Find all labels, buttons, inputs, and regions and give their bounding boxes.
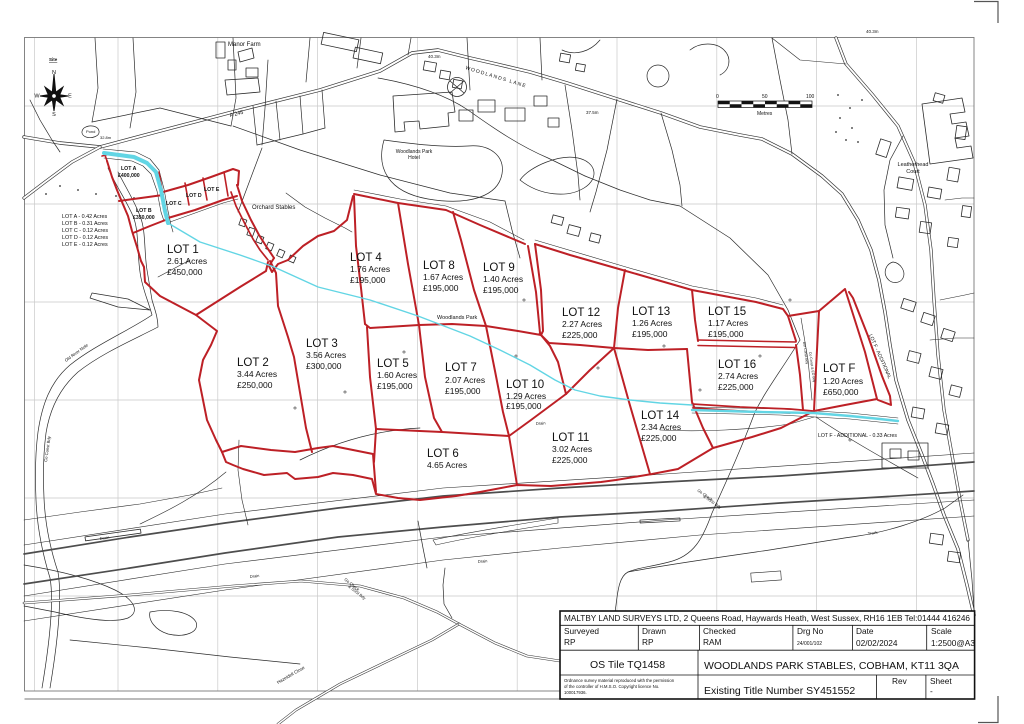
svg-text:LOT 7: LOT 7 — [445, 362, 477, 374]
svg-text:3.44 Acres: 3.44 Acres — [237, 369, 277, 379]
svg-text:of the controller of H.M.S.O.: of the controller of H.M.S.O. Copyright … — [564, 684, 659, 689]
svg-text:Leatherhead: Leatherhead — [898, 162, 929, 168]
svg-text:40.3m: 40.3m — [428, 54, 441, 59]
svg-text:LOT C: LOT C — [166, 201, 182, 207]
svg-text:E: E — [68, 94, 72, 100]
svg-text:1.29 Acres: 1.29 Acres — [506, 391, 546, 401]
svg-text:Scale: Scale — [931, 626, 952, 636]
svg-text:-: - — [930, 686, 933, 696]
svg-text:LOT E - 0.12 Acres: LOT E - 0.12 Acres — [62, 242, 108, 248]
svg-text:LOT E: LOT E — [204, 187, 220, 193]
svg-text:£400,000: £400,000 — [118, 173, 140, 179]
svg-text:LOT 2: LOT 2 — [237, 357, 269, 369]
svg-text:50: 50 — [762, 94, 768, 100]
svg-text:OS Tile TQ1458: OS Tile TQ1458 — [590, 659, 665, 671]
svg-text:LOT 14: LOT 14 — [641, 410, 680, 422]
svg-text:S: S — [52, 112, 56, 118]
svg-text:£225,000: £225,000 — [562, 330, 598, 340]
svg-text:2.61 Acres: 2.61 Acres — [167, 256, 207, 266]
svg-text:100: 100 — [806, 94, 815, 100]
svg-text:1.40 Acres: 1.40 Acres — [483, 274, 523, 284]
svg-text:£195,000: £195,000 — [483, 285, 519, 295]
svg-text:£300,000: £300,000 — [306, 361, 342, 371]
svg-text:Ordnance survey material repro: Ordnance survey material reproduced with… — [564, 678, 675, 683]
svg-text:LOT 5: LOT 5 — [377, 358, 409, 370]
svg-text:£195,000: £195,000 — [506, 401, 542, 411]
svg-text:LOT 6: LOT 6 — [427, 448, 459, 460]
svg-text:LOT 3: LOT 3 — [306, 338, 338, 350]
svg-text:LOT A: LOT A — [121, 166, 137, 172]
svg-text:24/001/102: 24/001/102 — [797, 641, 822, 647]
svg-text:RP: RP — [564, 637, 576, 647]
svg-text:LOT 9: LOT 9 — [483, 262, 515, 274]
svg-text:LOT B - 0.31 Acres: LOT B - 0.31 Acres — [62, 221, 108, 227]
svg-text:4.65 Acres: 4.65 Acres — [427, 460, 467, 470]
svg-text:LOT 15: LOT 15 — [708, 306, 746, 318]
svg-text:£225,000: £225,000 — [552, 455, 588, 465]
svg-text:WOODLANDS PARK STABLES, COBHAM: WOODLANDS PARK STABLES, COBHAM, KT11 3QA — [704, 660, 959, 672]
svg-text:LOT 11: LOT 11 — [552, 432, 589, 444]
svg-text:Checked: Checked — [703, 626, 736, 636]
svg-text:Orchard Stables: Orchard Stables — [252, 205, 295, 211]
svg-text:£195,000: £195,000 — [445, 386, 481, 396]
svg-text:2.27 Acres: 2.27 Acres — [562, 319, 602, 329]
svg-text:Sheet: Sheet — [930, 676, 952, 686]
svg-text:LOT F: LOT F — [823, 363, 855, 375]
svg-text:1.20 Acres: 1.20 Acres — [823, 376, 863, 386]
svg-text:LOT 13: LOT 13 — [632, 306, 670, 318]
svg-text:LOT D: LOT D — [186, 193, 202, 199]
svg-text:LOT F - ADDITIONAL - 0.33 Acre: LOT F - ADDITIONAL - 0.33 Acres — [818, 433, 897, 439]
svg-text:LOT D - 0.12 Acres: LOT D - 0.12 Acres — [62, 235, 108, 241]
svg-text:1.17 Acres: 1.17 Acres — [708, 318, 748, 328]
svg-text:Manor Farm: Manor Farm — [228, 42, 261, 48]
svg-text:1.60 Acres: 1.60 Acres — [377, 370, 417, 380]
svg-text:LOT 4: LOT 4 — [350, 252, 382, 264]
svg-text:3.02 Acres: 3.02 Acres — [552, 444, 592, 454]
svg-text:LOT 16: LOT 16 — [718, 359, 756, 371]
svg-text:Pond: Pond — [86, 129, 95, 134]
svg-text:£225,000: £225,000 — [641, 433, 677, 443]
svg-text:3.56 Acres: 3.56 Acres — [306, 350, 346, 360]
svg-text:£250,000: £250,000 — [237, 380, 273, 390]
svg-text:£350,000: £350,000 — [133, 215, 155, 221]
svg-text:Metres: Metres — [757, 111, 773, 117]
svg-text:MALTBY LAND SURVEYS LTD, 2 Que: MALTBY LAND SURVEYS LTD, 2 Queens Road, … — [564, 613, 970, 623]
svg-text:Woodlands Park: Woodlands Park — [437, 315, 478, 321]
svg-text:1.67 Acres: 1.67 Acres — [423, 272, 463, 282]
svg-text:£195,000: £195,000 — [708, 329, 744, 339]
svg-text:Surveyed: Surveyed — [564, 626, 599, 636]
svg-text:£650,000: £650,000 — [823, 387, 859, 397]
svg-text:02/02/2024: 02/02/2024 — [856, 638, 898, 648]
svg-text:Rev: Rev — [892, 676, 908, 686]
svg-text:£195,000: £195,000 — [423, 283, 459, 293]
svg-text:Hotel: Hotel — [408, 155, 420, 161]
svg-text:W: W — [34, 94, 40, 100]
svg-text:Date: Date — [856, 626, 874, 636]
svg-text:Court: Court — [906, 169, 920, 175]
svg-text:1:2500@A3: 1:2500@A3 — [931, 638, 975, 648]
svg-text:2.74 Acres: 2.74 Acres — [718, 371, 758, 381]
svg-text:£195,000: £195,000 — [632, 329, 668, 339]
svg-text:£450,000: £450,000 — [167, 267, 203, 277]
svg-text:£195,000: £195,000 — [377, 381, 413, 391]
svg-text:Drain: Drain — [536, 420, 546, 426]
svg-text:37.5m: 37.5m — [586, 110, 599, 115]
svg-text:LOT 12: LOT 12 — [562, 307, 600, 319]
svg-text:RP: RP — [642, 637, 654, 647]
svg-text:LOT 8: LOT 8 — [423, 260, 455, 272]
svg-text:2.34 Acres: 2.34 Acres — [641, 422, 681, 432]
svg-text:2.07 Acres: 2.07 Acres — [445, 375, 485, 385]
svg-text:N: N — [52, 70, 56, 76]
svg-text:£195,000: £195,000 — [350, 275, 386, 285]
svg-text:0: 0 — [716, 94, 719, 100]
svg-text:Existing Title Number SY451552: Existing Title Number SY451552 — [704, 685, 855, 697]
svg-text:LOT 1: LOT 1 — [167, 244, 199, 256]
svg-text:40.3m: 40.3m — [866, 29, 879, 34]
svg-text:LOT C - 0.12 Acres: LOT C - 0.12 Acres — [62, 228, 108, 234]
svg-text:Drawn: Drawn — [642, 626, 666, 636]
svg-text:RAM: RAM — [703, 637, 722, 647]
svg-text:LOT B: LOT B — [136, 208, 152, 214]
svg-text:Drain: Drain — [478, 558, 488, 564]
svg-text:LOT A - 0.42 Acres: LOT A - 0.42 Acres — [62, 214, 107, 220]
svg-text:Site: Site — [49, 57, 58, 62]
svg-text:£225,000: £225,000 — [718, 382, 754, 392]
svg-text:1.26 Acres: 1.26 Acres — [632, 318, 672, 328]
svg-text:Drg No: Drg No — [797, 626, 824, 636]
svg-text:100017936.: 100017936. — [564, 690, 587, 695]
svg-text:1.76 Acres: 1.76 Acres — [350, 264, 390, 274]
svg-text:LOT 10: LOT 10 — [506, 379, 544, 391]
svg-text:32.8m: 32.8m — [100, 135, 112, 140]
